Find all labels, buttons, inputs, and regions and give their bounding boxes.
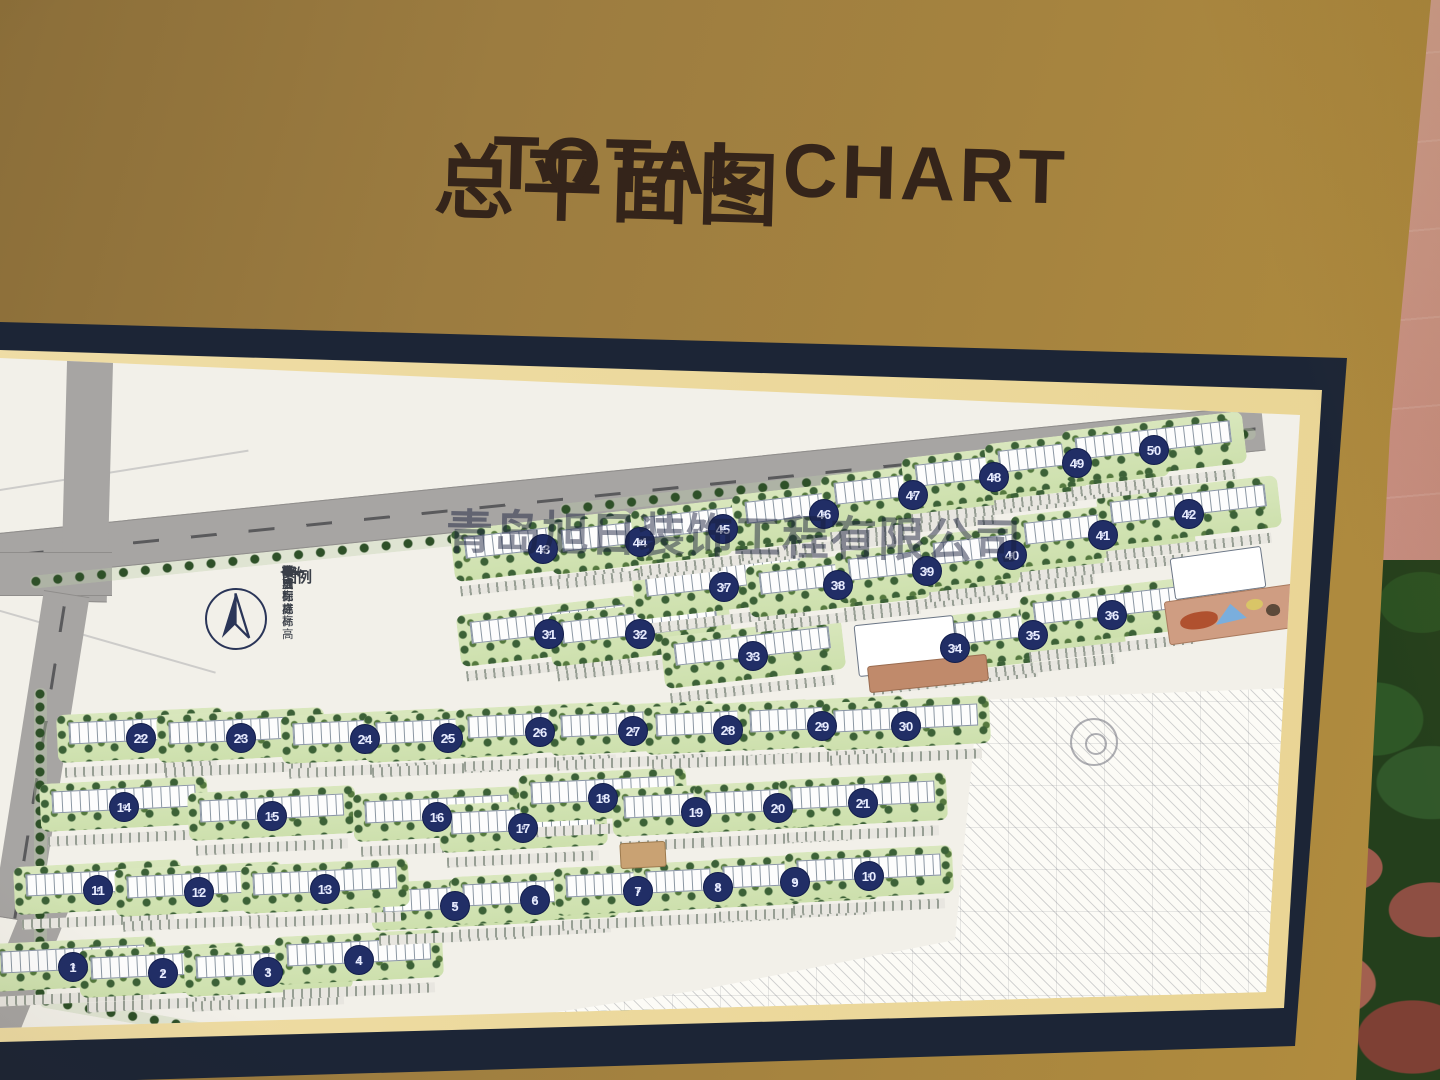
building-number-suffix: #	[140, 735, 144, 742]
commercial	[619, 841, 666, 869]
building-number-suffix: #	[637, 888, 641, 895]
building-number-marker: 49#	[1062, 448, 1092, 478]
building-number-suffix: #	[752, 653, 756, 660]
company-watermark: 青岛旭日装饰工程有限公司	[445, 493, 1022, 572]
building-number-marker: 5#	[440, 891, 470, 921]
building-number-suffix: #	[1102, 532, 1106, 539]
building-number-suffix: #	[912, 492, 916, 499]
building-number-marker: 22#	[126, 723, 156, 753]
building-number-suffix: #	[72, 964, 76, 971]
building-number-suffix: #	[1076, 460, 1080, 467]
building-number-marker: 8#	[703, 872, 733, 902]
building-number-marker: 23#	[226, 723, 256, 753]
building-number-marker: 13#	[310, 874, 340, 904]
building-number-suffix: #	[794, 879, 798, 886]
building-number-suffix: #	[324, 886, 328, 893]
building-number-marker: 17#	[508, 813, 538, 843]
building-number-suffix: #	[837, 582, 841, 589]
building-number-marker: 30#	[891, 711, 921, 741]
building-number-suffix: #	[632, 728, 636, 735]
building-number-marker: 12#	[184, 877, 214, 907]
building-number-marker: 36#	[1097, 600, 1127, 630]
building-number-marker: 26#	[525, 717, 555, 747]
building-number-marker: 33#	[738, 641, 768, 671]
building-number-suffix: #	[821, 723, 825, 730]
building-number-suffix: #	[198, 889, 202, 896]
building-number-suffix: #	[358, 957, 362, 964]
building-number-marker: 48#	[979, 462, 1009, 492]
parking-street	[48, 829, 200, 846]
building-number-suffix: #	[267, 969, 271, 976]
building-number-marker: 16#	[422, 802, 452, 832]
building-number-suffix: #	[364, 736, 368, 743]
building-number-marker: 20#	[763, 793, 793, 823]
building-number-marker: 32#	[625, 619, 655, 649]
building-number-marker: 31#	[534, 619, 564, 649]
building-number-marker: 4#	[344, 945, 374, 975]
photo-of-site-plan-board: 总平面图TOTAL CHART 1#2#3#4#5#6#7#8#9#10#11#…	[0, 0, 1440, 1080]
building-number-suffix: #	[123, 804, 127, 811]
building-number-suffix: #	[97, 887, 101, 894]
building-number-suffix: #	[454, 903, 458, 910]
building-number-marker: 37#	[709, 572, 739, 602]
building-number-suffix: #	[1153, 447, 1157, 454]
building-number-suffix: #	[717, 884, 721, 891]
building-number-suffix: #	[723, 584, 727, 591]
building-number-suffix: #	[777, 805, 781, 812]
building-number-marker: 11#	[83, 875, 113, 905]
parking-street	[787, 825, 939, 842]
building-number-marker: 14#	[109, 792, 139, 822]
building-number-suffix: #	[522, 825, 526, 832]
parking-street	[447, 850, 599, 867]
building-number-suffix: #	[602, 795, 606, 802]
building-number-marker: 2#	[148, 958, 178, 988]
building-number-marker: 41#	[1088, 520, 1118, 550]
building-number-marker: 9#	[780, 867, 810, 897]
building-number-suffix: #	[162, 970, 166, 977]
building-number-marker: 29#	[807, 711, 837, 741]
building-number-marker: 15#	[257, 801, 287, 831]
building-number-marker: 24#	[350, 724, 380, 754]
building-number-suffix: #	[954, 645, 958, 652]
building-number-suffix: #	[868, 873, 872, 880]
building-number-marker: 42#	[1174, 499, 1204, 529]
building-number-marker: 18#	[588, 783, 618, 813]
building-number-suffix: #	[539, 729, 543, 736]
building-number-marker: 50#	[1139, 435, 1169, 465]
building-number-marker: 34#	[940, 633, 970, 663]
building-number-marker: 1#	[58, 952, 88, 982]
building-number-marker: 27#	[618, 716, 648, 746]
building-number-suffix: #	[862, 800, 866, 807]
building-number-suffix: #	[727, 727, 731, 734]
building-number-suffix: #	[1032, 632, 1036, 639]
building-number-marker: 35#	[1018, 620, 1048, 650]
building-number-marker: 38#	[823, 570, 853, 600]
building-number-suffix: #	[1111, 612, 1115, 619]
building-number-marker: 25#	[433, 723, 463, 753]
building-number-suffix: #	[639, 631, 643, 638]
building-number-marker: 28#	[713, 715, 743, 745]
building-number-marker: 19#	[681, 797, 711, 827]
building-number-marker: 6#	[520, 885, 550, 915]
north-arrow-icon	[205, 588, 267, 650]
building-number-suffix: #	[436, 814, 440, 821]
building-number-suffix: #	[240, 735, 244, 742]
building-number-suffix: #	[993, 474, 997, 481]
building-number-suffix: #	[447, 735, 451, 742]
building-number-suffix: #	[1188, 511, 1192, 518]
building-number-suffix: #	[548, 631, 552, 638]
building-number-suffix: #	[271, 813, 275, 820]
building-number-suffix: #	[695, 809, 699, 816]
building-number-marker: 7#	[623, 876, 653, 906]
legend-label: 坡度	[282, 566, 294, 591]
building-number-marker: 10#	[854, 861, 884, 891]
building-number-marker: 21#	[848, 788, 878, 818]
building-number-marker: 3#	[253, 957, 283, 987]
building-number-suffix: #	[534, 897, 538, 904]
parking-street	[196, 838, 348, 855]
building-number-suffix: #	[905, 723, 909, 730]
title-english: TOTAL CHART	[492, 120, 1070, 222]
